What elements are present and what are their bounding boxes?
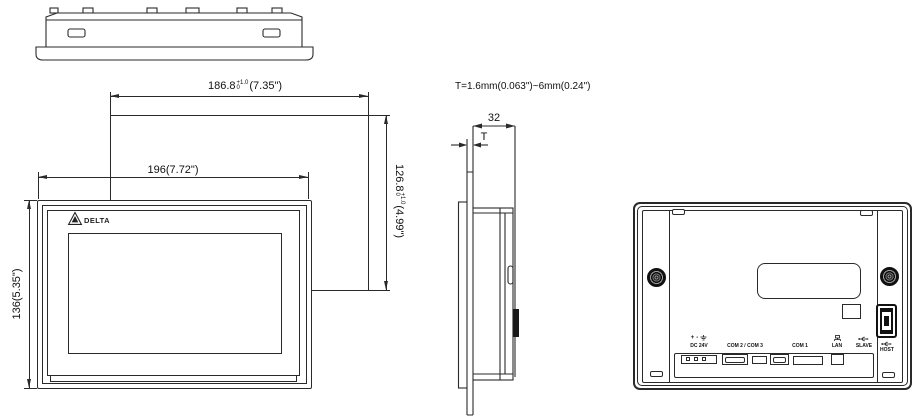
- mounting-slot: [882, 372, 895, 378]
- lan-jack: [831, 354, 844, 365]
- small-access-cover: [842, 304, 861, 319]
- screw-right: [880, 267, 899, 286]
- arrowhead: [384, 115, 388, 124]
- panel-dimensions-drawing: DELTA 186.8 +1.0 0 (7.35") 196(7.72") 12…: [0, 0, 920, 420]
- mounting-slot: [650, 371, 663, 377]
- arrowhead: [110, 94, 119, 98]
- rear-divider-left: [669, 211, 670, 382]
- dim-outer-height-line: [29, 200, 30, 388]
- touchscreen: [68, 233, 282, 354]
- com1-connector-inner: [773, 357, 786, 363]
- com23-connector-inner: [725, 357, 745, 363]
- plus-symbol: +: [691, 335, 695, 341]
- front-bottom-strip: [50, 375, 297, 382]
- arrowhead: [459, 143, 467, 148]
- delta-logo-icon: [68, 212, 82, 225]
- connector: [793, 356, 823, 365]
- arrowhead: [27, 200, 31, 209]
- extension-line: [38, 172, 39, 199]
- usb-host-contacts: [884, 316, 889, 326]
- extension-line: [308, 172, 309, 199]
- arrowhead: [38, 175, 47, 179]
- dim-outer-height-label: 136(5.35"): [11, 254, 23, 334]
- nameplate-area: [757, 263, 861, 299]
- arrowhead: [384, 281, 388, 290]
- dim-inch: (4.99"): [393, 205, 405, 238]
- brand-wordmark: DELTA: [84, 216, 110, 225]
- power-symbols: + -: [684, 335, 714, 341]
- mounting-plate: [467, 172, 473, 208]
- side-usb-bump: [513, 309, 520, 337]
- extension-line: [24, 200, 37, 201]
- mounting-plate: [467, 380, 473, 415]
- top-view-clip: [83, 8, 93, 13]
- mounting-slot: [860, 210, 873, 216]
- dim-cutout-width-label: 186.8 +1.0 0 (7.35"): [180, 80, 310, 92]
- minus-symbol: -: [696, 335, 698, 341]
- thickness-note: T=1.6mm(0.063")~6mm(0.24"): [455, 81, 590, 92]
- dim-value: 126.8: [393, 164, 405, 192]
- dim-tolerance: +1.0 0: [394, 193, 404, 205]
- dim-cutout-width-line: [110, 96, 368, 97]
- label-com23: COM 2 / COM 3: [717, 343, 773, 349]
- arrowhead: [27, 379, 31, 388]
- dim-outer-width-line: [38, 177, 308, 178]
- power-pin: [694, 357, 698, 361]
- top-view-clip: [272, 8, 282, 13]
- dim-outer-width-label: 196(7.72"): [110, 164, 236, 176]
- side-view: [440, 110, 530, 420]
- dim-cutout-height-line: [386, 115, 387, 290]
- arrowhead: [473, 143, 481, 148]
- ground-icon: [700, 335, 707, 341]
- cutout-right-edge: [368, 92, 369, 290]
- top-view-clip: [237, 8, 247, 13]
- label-host: HOST: [875, 347, 899, 353]
- connector: [752, 356, 767, 364]
- dim-thickness-label: T: [476, 131, 492, 143]
- label-lan: LAN: [826, 343, 848, 349]
- rear-divider-right: [877, 211, 878, 382]
- arrowhead: [473, 124, 482, 129]
- mounting-slot: [672, 209, 685, 215]
- dim-value: 186.8: [208, 80, 236, 92]
- side-body: [473, 208, 513, 380]
- extension-line: [24, 388, 37, 389]
- dim-depth-label: 32: [480, 112, 508, 124]
- power-pin: [702, 357, 706, 361]
- arrowhead: [299, 175, 308, 179]
- screw-left: [647, 268, 666, 287]
- cutout-top-edge: [110, 115, 390, 116]
- power-pin: [686, 357, 690, 361]
- label-dc24v: DC 24V: [684, 343, 714, 349]
- usb-icon: [858, 336, 869, 342]
- top-view: [30, 2, 320, 64]
- arrowhead: [359, 94, 368, 98]
- dim-inch: (7.35"): [249, 80, 282, 92]
- top-view-clip: [147, 8, 157, 13]
- top-view-clip: [186, 8, 199, 13]
- dim-tolerance: +1.0 0: [237, 81, 249, 91]
- side-bezel: [459, 202, 468, 388]
- dim-cutout-height-label: 126.8 +1.0 0 (4.99"): [393, 141, 405, 261]
- cutout-bottom-edge: [312, 290, 390, 291]
- label-slave: SLAVE: [851, 343, 877, 349]
- top-view-flange: [36, 47, 313, 60]
- top-view-slot: [263, 29, 280, 37]
- lan-icon: [833, 335, 842, 342]
- top-view-clip: [50, 8, 58, 13]
- arrowhead: [506, 124, 515, 129]
- side-latch-slot: [508, 266, 513, 284]
- label-com1: COM 1: [782, 343, 818, 349]
- top-view-slot: [68, 29, 85, 37]
- cutout-left-edge: [110, 92, 111, 200]
